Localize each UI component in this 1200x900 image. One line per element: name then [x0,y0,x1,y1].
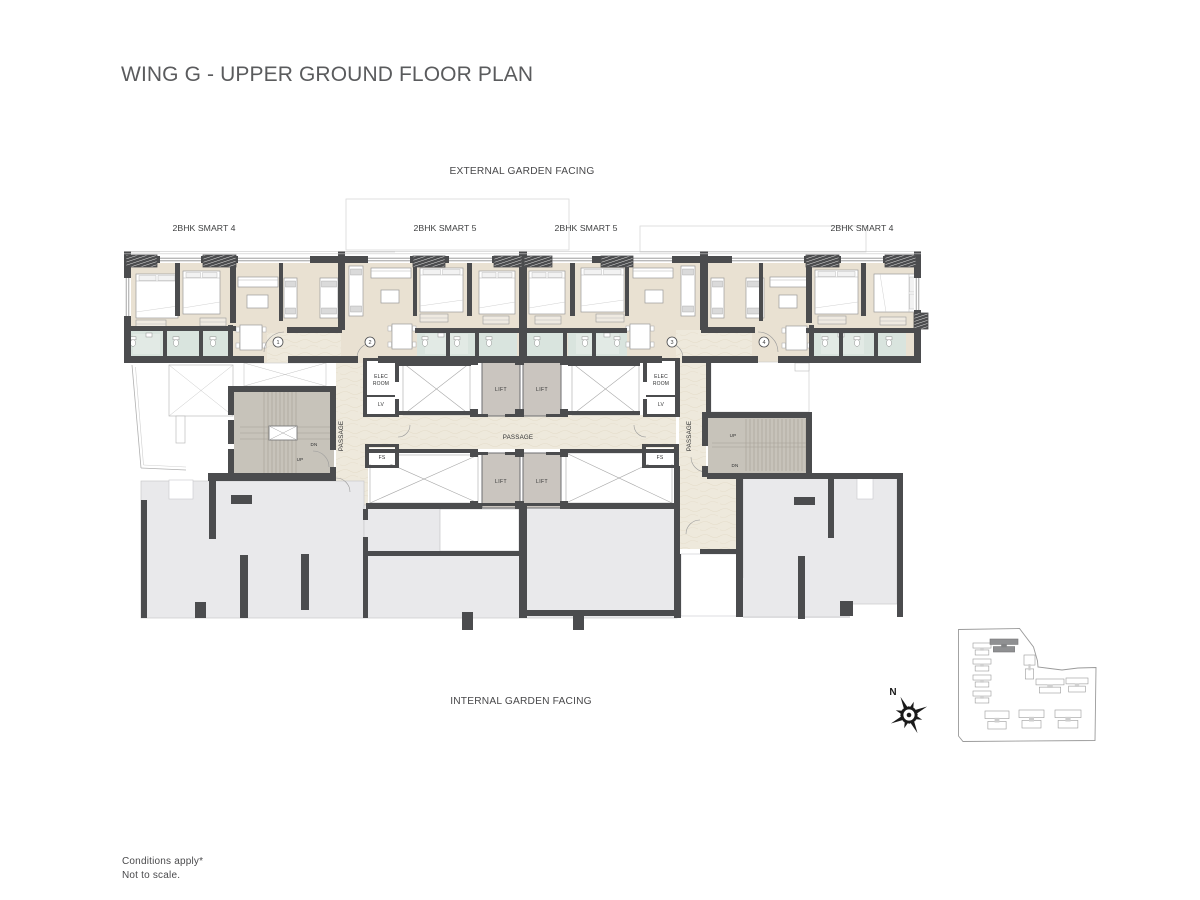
svg-text:LIFT: LIFT [536,479,548,485]
svg-text:ROOM: ROOM [373,381,389,387]
svg-text:LIFT: LIFT [536,387,548,393]
svg-text:1: 1 [276,340,279,346]
svg-text:2BHK SMART 5: 2BHK SMART 5 [413,223,476,233]
svg-text:2BHK SMART 4: 2BHK SMART 4 [172,223,235,233]
svg-text:FS: FS [657,455,664,461]
svg-text:2: 2 [368,340,371,346]
svg-text:2BHK SMART 5: 2BHK SMART 5 [554,223,617,233]
svg-text:INTERNAL GARDEN FACING: INTERNAL GARDEN FACING [450,696,592,707]
svg-text:FS: FS [379,455,386,461]
svg-text:LIFT: LIFT [495,387,507,393]
svg-text:DN: DN [731,463,738,468]
svg-text:4: 4 [762,340,765,346]
svg-text:WING G - UPPER GROUND FLOOR PL: WING G - UPPER GROUND FLOOR PLAN [121,63,533,86]
svg-text:PASSAGE: PASSAGE [686,421,693,452]
svg-text:Conditions apply*: Conditions apply* [122,856,203,867]
svg-text:LV: LV [658,402,665,408]
svg-text:EXTERNAL GARDEN FACING: EXTERNAL GARDEN FACING [450,166,595,177]
svg-text:UP: UP [297,457,304,462]
svg-text:UP: UP [730,433,737,438]
svg-text:ELEC: ELEC [654,374,668,380]
svg-text:ELEC: ELEC [374,374,388,380]
svg-text:Not to scale.: Not to scale. [122,870,180,881]
svg-text:3: 3 [670,340,673,346]
svg-text:ROOM: ROOM [653,381,669,387]
svg-text:DN: DN [310,442,317,447]
svg-text:LV: LV [378,402,385,408]
svg-text:N: N [889,687,896,698]
svg-text:PASSAGE: PASSAGE [338,421,345,452]
svg-text:PASSAGE: PASSAGE [503,434,534,441]
svg-text:2BHK SMART 4: 2BHK SMART 4 [830,223,893,233]
svg-text:LIFT: LIFT [495,479,507,485]
